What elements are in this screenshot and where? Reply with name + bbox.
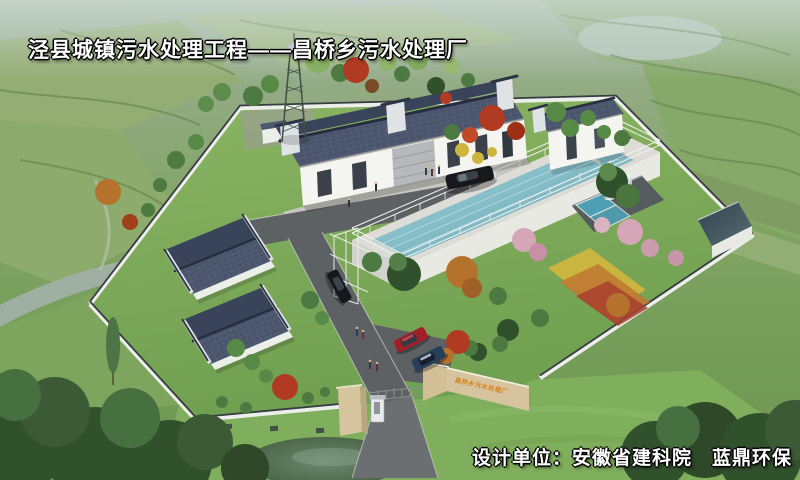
site-plan-scene: 昌桥乡污水处理厂 (0, 0, 800, 480)
project-title: 泾县城镇污水处理工程——昌桥乡污水处理厂 (28, 34, 468, 64)
guard-box (370, 395, 386, 422)
gate-pillar (336, 385, 368, 436)
aerial-rendering: 昌桥乡污水处理厂 (0, 0, 800, 480)
design-credit: 设计单位：安徽省建科院 蓝鼎环保 (472, 443, 792, 470)
